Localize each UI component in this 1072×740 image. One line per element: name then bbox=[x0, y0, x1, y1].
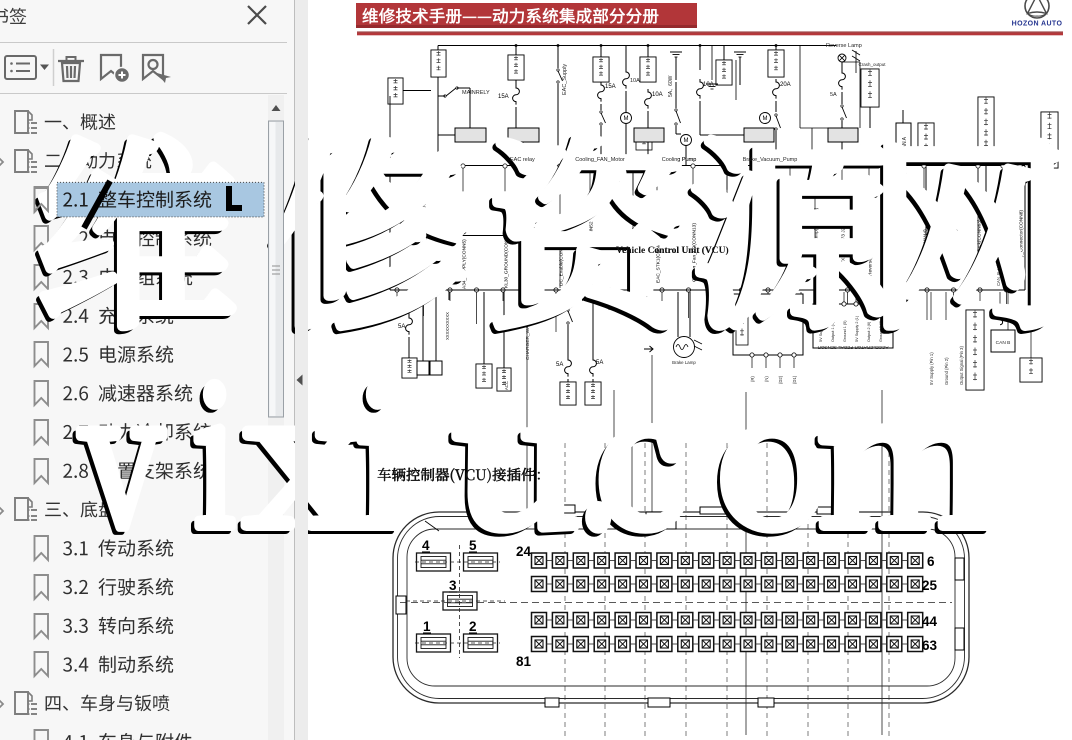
svg-text:1: 1 bbox=[423, 619, 431, 634]
svg-text:2: 2 bbox=[469, 619, 477, 634]
svg-text:MAINRELY: MAINRELY bbox=[462, 90, 490, 96]
svg-text:24: 24 bbox=[516, 544, 532, 559]
svg-text:(R): (R) bbox=[750, 376, 755, 382]
svg-text:5A、60W: 5A、60W bbox=[668, 75, 674, 97]
svg-text:4: 4 bbox=[422, 538, 430, 553]
svg-text:5V Supply 2 (1): 5V Supply 2 (1) bbox=[855, 315, 859, 342]
svg-text:Brake_Vacuum_Pump: Brake_Vacuum_Pump bbox=[743, 157, 798, 163]
svg-text:5A: 5A bbox=[596, 360, 603, 366]
svg-text:EAC relay: EAC relay bbox=[510, 157, 535, 163]
svg-text:5: 5 bbox=[469, 538, 477, 553]
svg-text:25: 25 bbox=[922, 578, 938, 593]
svg-text:CAN B: CAN B bbox=[996, 340, 1011, 346]
svg-text:15A: 15A bbox=[498, 94, 509, 100]
svg-text:M: M bbox=[624, 116, 629, 122]
svg-text:Vehicle Control Unit (VCU): Vehicle Control Unit (VCU) bbox=[616, 245, 729, 256]
svg-text:EAC_Supply: EAC_Supply bbox=[562, 64, 568, 95]
svg-text:Output 2 (6): Output 2 (6) bbox=[867, 321, 871, 342]
svg-text:5A: 5A bbox=[830, 92, 837, 98]
svg-text:HOZON AUTO: HOZON AUTO bbox=[1012, 21, 1063, 28]
svg-text:M: M bbox=[763, 116, 768, 122]
svg-text:A34_SUPPLY(CONN5): A34_SUPPLY(CONN5) bbox=[461, 239, 467, 289]
svg-text:20A: 20A bbox=[780, 82, 791, 88]
svg-text:10A: 10A bbox=[703, 82, 714, 88]
svg-text:15A: 15A bbox=[605, 84, 616, 90]
svg-text:ACCELERATOR PEDAL SENSOR: ACCELERATOR PEDAL SENSOR bbox=[817, 345, 889, 350]
svg-text:Output Signal (Pin 3): Output Signal (Pin 3) bbox=[959, 346, 964, 385]
svg-text:(D2): (D2) bbox=[778, 375, 783, 384]
svg-text:Cooling_FAN_Motor: Cooling_FAN_Motor bbox=[575, 157, 625, 163]
svg-text:ACC: ACC bbox=[504, 381, 509, 390]
svg-text:5A: 5A bbox=[556, 362, 563, 368]
svg-text:10A: 10A bbox=[630, 78, 640, 84]
svg-text:Cooling Pump: Cooling Pump bbox=[662, 157, 697, 163]
svg-text:5V Supply (Pin 1): 5V Supply (Pin 1) bbox=[929, 352, 934, 385]
svg-text:44: 44 bbox=[922, 614, 938, 629]
svg-text:XXXXXXXXXX: XXXXXXXXXX bbox=[445, 312, 450, 340]
svg-text:Reverse Lamp: Reverse Lamp bbox=[826, 43, 862, 49]
svg-text:Ground 1 (5): Ground 1 (5) bbox=[843, 320, 847, 342]
svg-text:63: 63 bbox=[922, 638, 938, 653]
svg-text:(N): (N) bbox=[764, 376, 769, 382]
svg-text:(D1): (D1) bbox=[792, 375, 797, 384]
svg-text:Crash_output: Crash_output bbox=[858, 62, 886, 67]
svg-text:10A: 10A bbox=[652, 92, 663, 98]
svg-text:6: 6 bbox=[927, 554, 935, 569]
svg-text:Ground (Pin 2): Ground (Pin 2) bbox=[944, 357, 949, 385]
svg-text:81: 81 bbox=[516, 654, 532, 669]
svg-text:5A: 5A bbox=[398, 324, 405, 330]
svg-text:M: M bbox=[684, 138, 689, 144]
svg-text:Brake Lamp: Brake Lamp bbox=[672, 360, 696, 365]
svg-text:3: 3 bbox=[449, 578, 457, 593]
